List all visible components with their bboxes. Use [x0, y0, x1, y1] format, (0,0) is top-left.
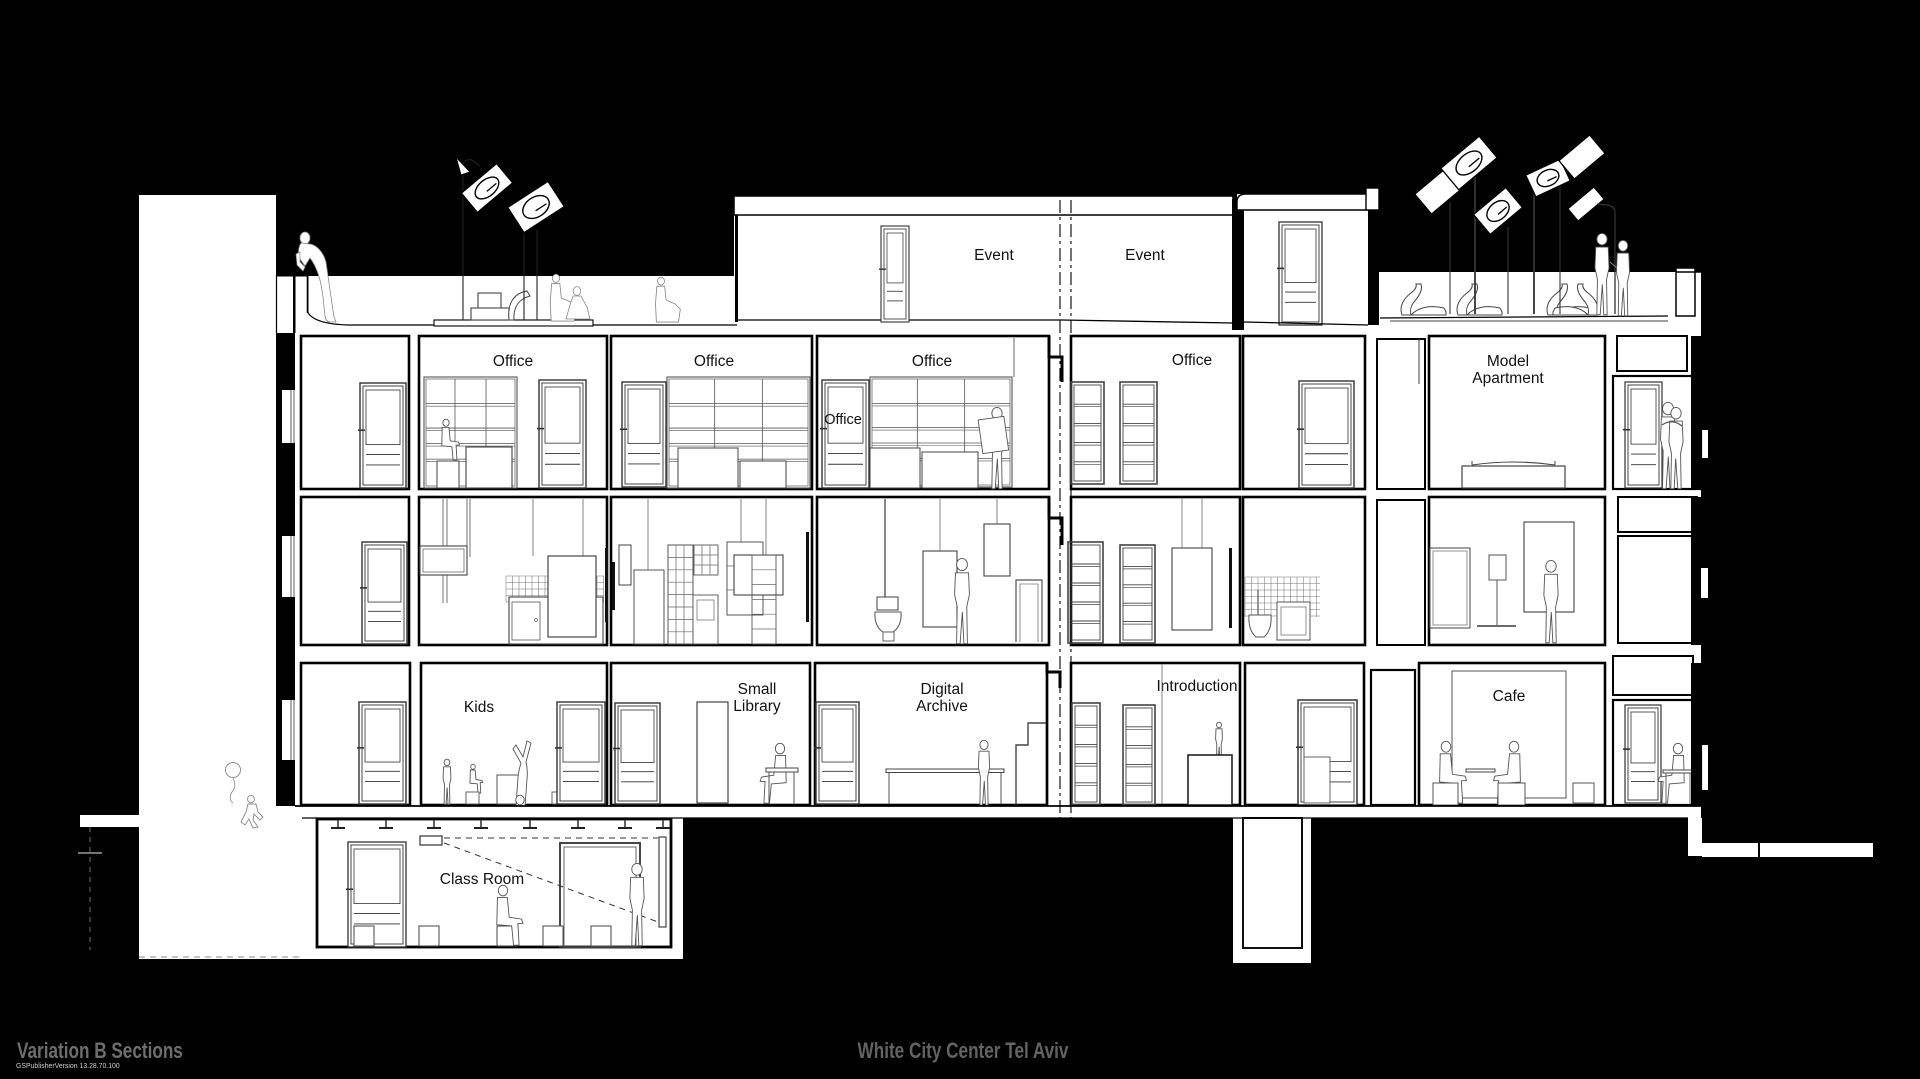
- svg-text:Office: Office: [1172, 352, 1212, 369]
- svg-text:Office: Office: [912, 353, 952, 370]
- svg-text:Digital: Digital: [920, 681, 963, 698]
- svg-text:Introduction: Introduction: [1157, 678, 1238, 695]
- svg-text:Class Room: Class Room: [440, 871, 524, 888]
- svg-text:Kids: Kids: [464, 699, 494, 716]
- svg-text:Library: Library: [733, 698, 781, 715]
- svg-text:Office: Office: [493, 353, 533, 370]
- svg-text:Event: Event: [1125, 247, 1165, 264]
- svg-text:Model: Model: [1487, 353, 1529, 370]
- svg-text:Office: Office: [824, 412, 862, 428]
- svg-text:GSPublisherVersion 13.28.70.10: GSPublisherVersion 13.28.70.100: [16, 1061, 120, 1070]
- svg-text:White City Center Tel Aviv: White City Center Tel Aviv: [858, 1039, 1069, 1064]
- svg-text:Cafe: Cafe: [1493, 688, 1526, 705]
- svg-text:Event: Event: [974, 247, 1014, 264]
- svg-text:Office: Office: [694, 353, 734, 370]
- svg-text:Apartment: Apartment: [1472, 370, 1544, 387]
- svg-text:Archive: Archive: [916, 698, 968, 715]
- svg-text:Small: Small: [738, 681, 777, 698]
